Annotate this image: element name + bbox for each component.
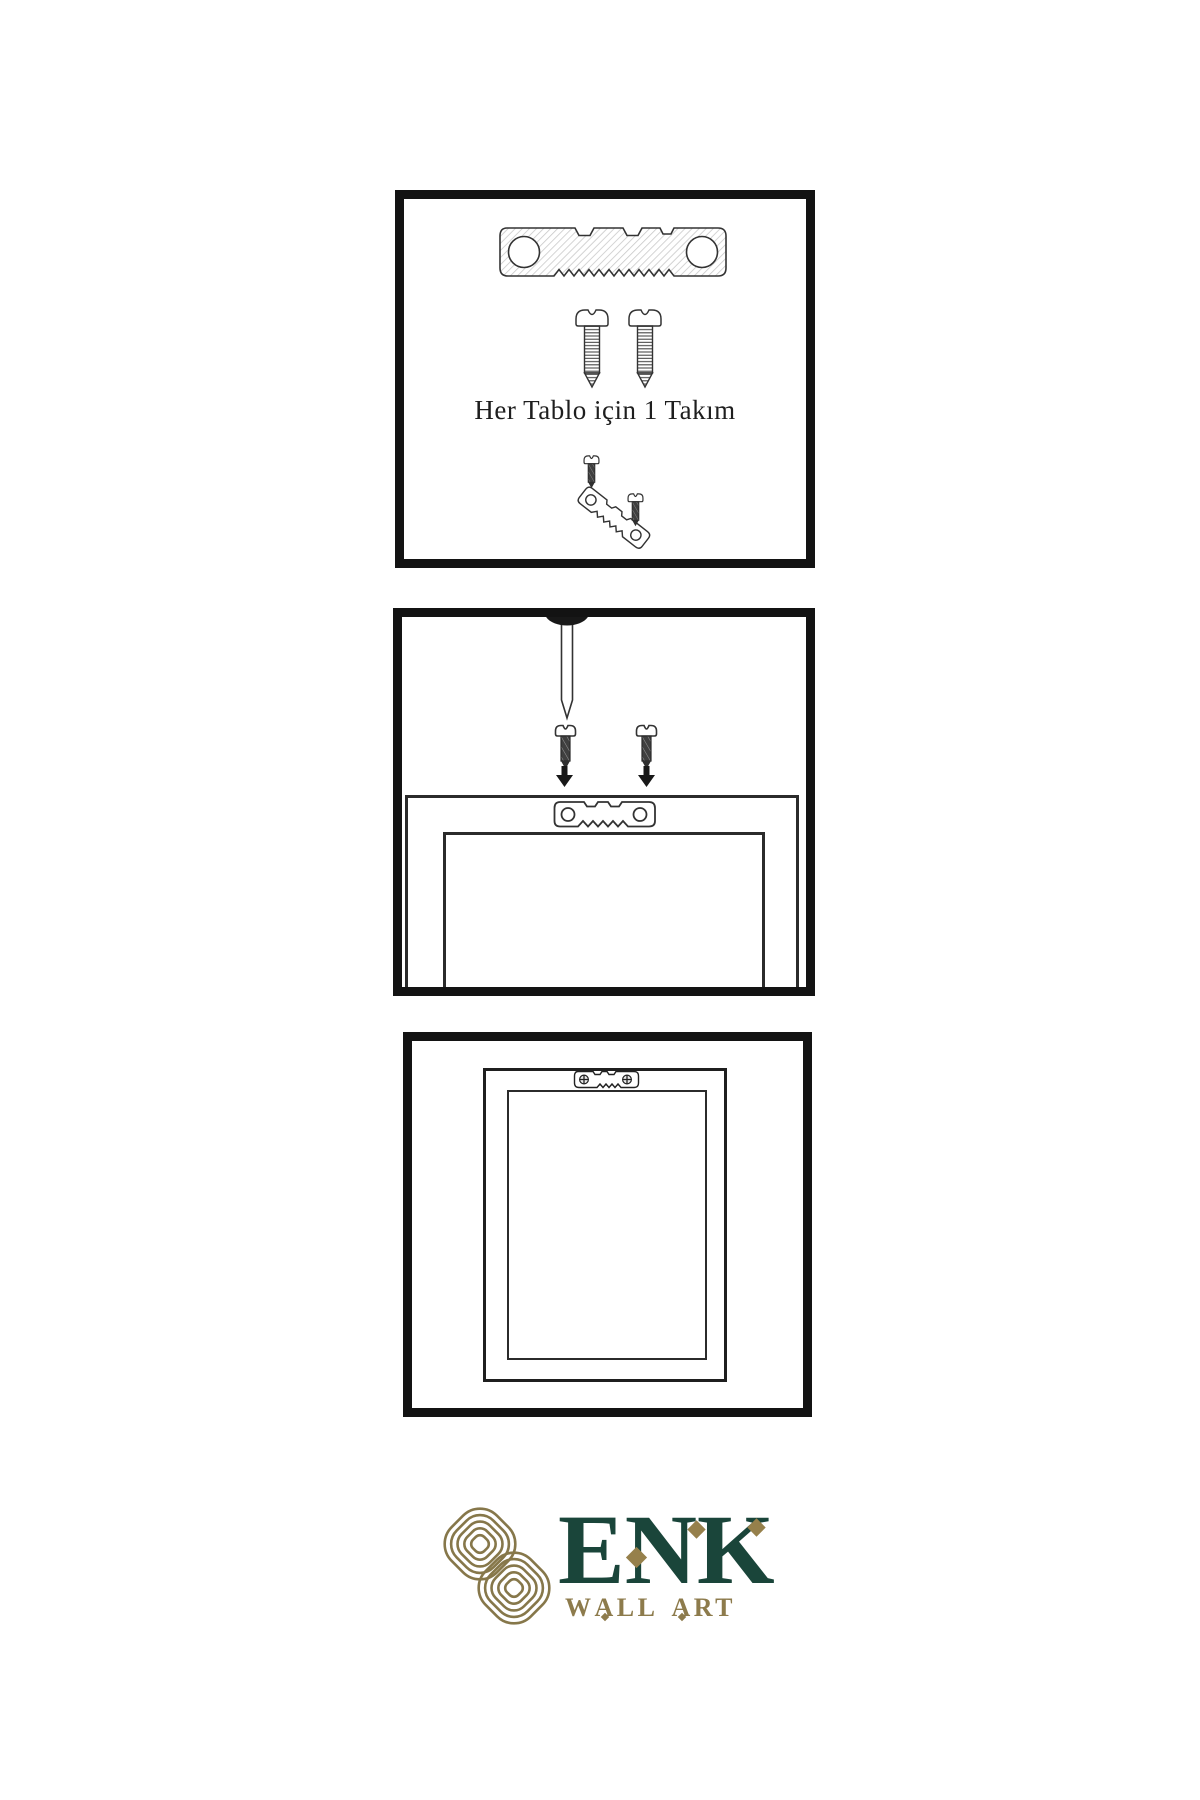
- knot-logo-icon: [438, 1496, 558, 1638]
- subtitle-text: LL: [617, 1593, 659, 1623]
- mounting-screw-icon: [634, 723, 659, 770]
- screw-icon: [625, 306, 665, 392]
- frame-back-inner-outline: [443, 832, 765, 987]
- step-2-panel: [393, 608, 815, 996]
- picture-frame-inner-outline: [507, 1090, 707, 1360]
- sawtooth-hanger-icon: [497, 225, 729, 279]
- arrow-down-icon: [638, 766, 655, 787]
- subtitle-letter-a: A: [595, 1593, 617, 1623]
- step-2-content: [402, 617, 806, 987]
- brand-subtitle: WALLART: [565, 1593, 736, 1623]
- brand-wordmark: ENK: [558, 1500, 775, 1600]
- sawtooth-hanger-plate-icon: [552, 800, 658, 829]
- mounting-screw-icon: [582, 454, 601, 489]
- mounted-sawtooth-hanger-icon: [573, 1070, 640, 1089]
- step-1-panel: Her Tablo için 1 Takım: [395, 190, 815, 568]
- arrow-down-icon: [556, 766, 573, 787]
- kit-caption: Her Tablo için 1 Takım: [404, 395, 806, 426]
- mounting-screw-icon: [626, 492, 645, 527]
- subtitle-letter-a: A: [671, 1593, 693, 1623]
- wall-nail-icon: [544, 617, 590, 721]
- subtitle-text: W: [565, 1593, 595, 1623]
- mounting-screw-icon: [553, 723, 578, 770]
- step-1-content: Her Tablo için 1 Takım: [404, 199, 806, 559]
- step-3-panel: [403, 1032, 812, 1417]
- step-3-content: [412, 1041, 803, 1408]
- screw-icon: [572, 306, 612, 392]
- subtitle-text: RT: [694, 1593, 736, 1623]
- instruction-sheet: Her Tablo için 1 Takım: [0, 0, 1200, 1800]
